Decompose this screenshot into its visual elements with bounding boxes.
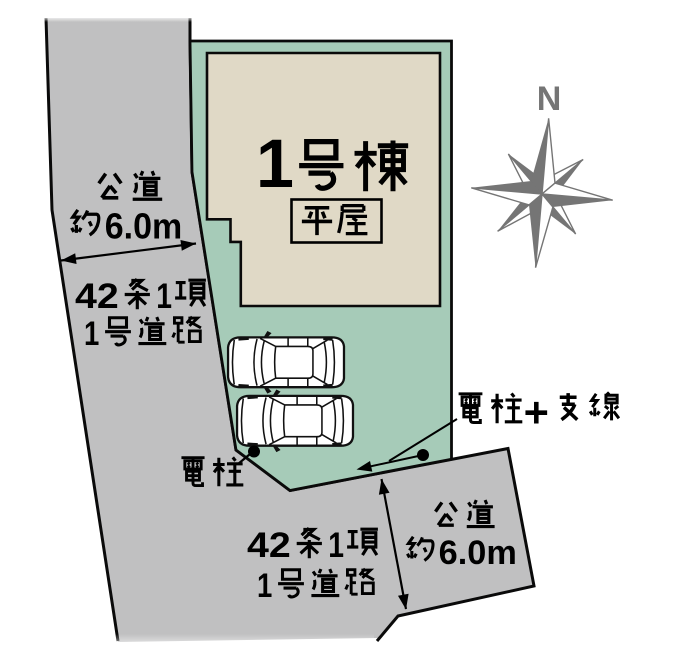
svg-text:1: 1 (257, 567, 272, 605)
svg-text:1: 1 (156, 277, 172, 316)
svg-text:N: N (537, 80, 562, 118)
svg-text:1: 1 (328, 526, 344, 565)
svg-text:1: 1 (256, 126, 294, 202)
svg-text:6.0m: 6.0m (439, 534, 517, 572)
svg-text:42: 42 (75, 277, 119, 316)
svg-text:1: 1 (84, 315, 99, 353)
svg-text:42: 42 (247, 526, 291, 565)
svg-text:6.0m: 6.0m (105, 206, 182, 247)
